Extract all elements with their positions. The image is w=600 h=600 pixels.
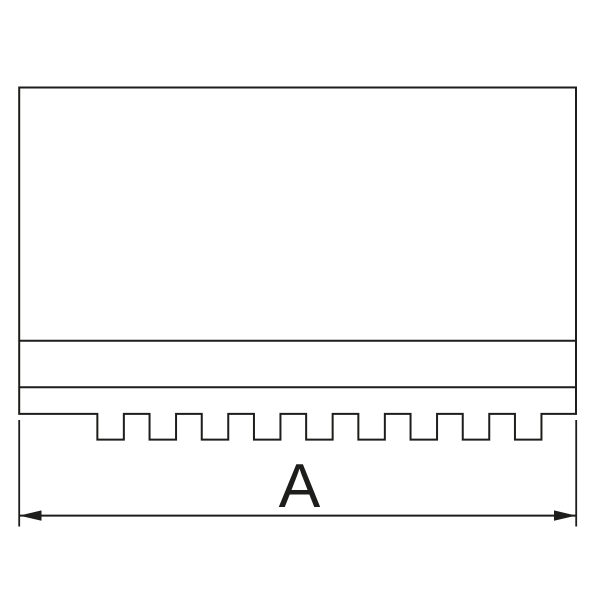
svg-text:A: A [279, 451, 321, 521]
